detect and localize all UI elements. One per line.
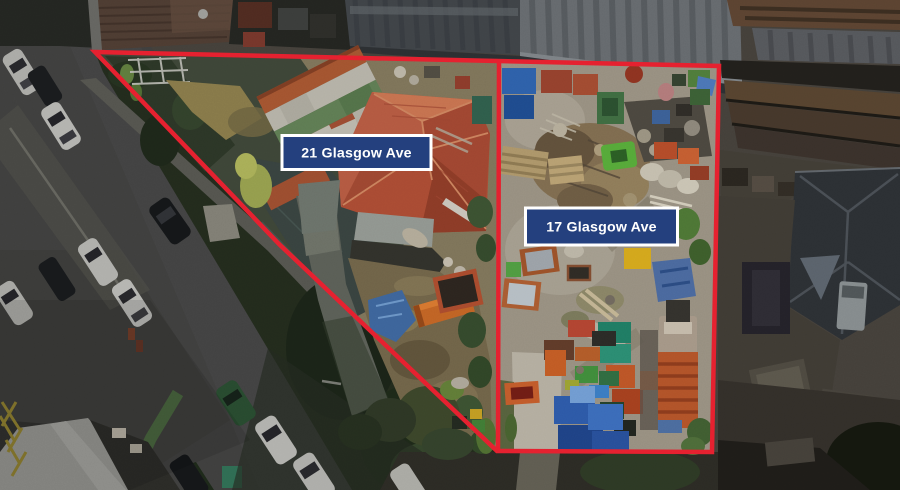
- svg-text:21 Glasgow Ave: 21 Glasgow Ave: [301, 146, 412, 162]
- svg-text:17 Glasgow Ave: 17 Glasgow Ave: [546, 220, 657, 236]
